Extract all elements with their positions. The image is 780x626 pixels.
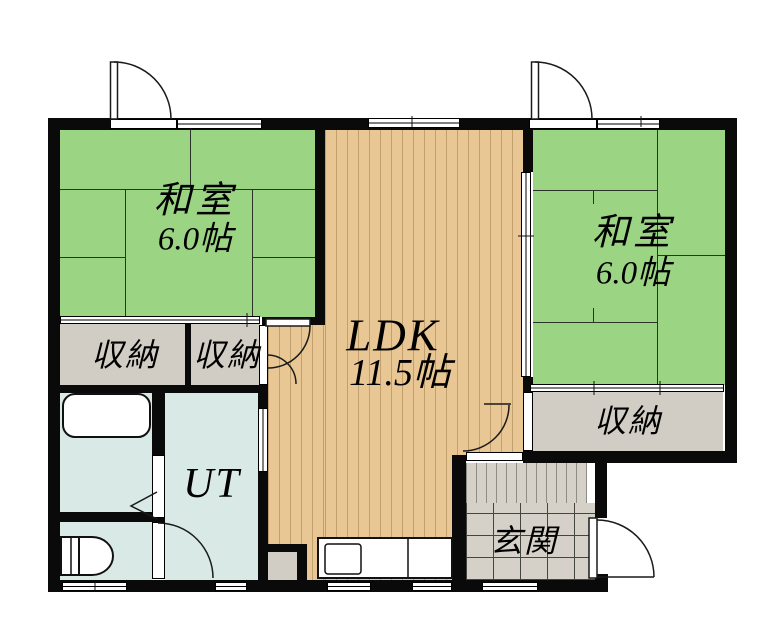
wall: [595, 451, 607, 518]
window: [412, 582, 452, 591]
window: [215, 582, 247, 591]
wall: [297, 544, 307, 582]
tatami-line: [593, 308, 594, 322]
storage-mid-label: 収納: [193, 339, 261, 371]
toilet-room-floor: [60, 522, 152, 580]
alcove-floor: [265, 552, 297, 582]
door-toilet: [152, 522, 165, 579]
room-ldk-floor: [325, 130, 523, 455]
room-ldk-floor-west: [268, 325, 325, 580]
genkan-label: 玄関: [490, 525, 558, 557]
wall: [452, 455, 466, 592]
tatami-line: [252, 257, 315, 258]
sliding-door: [60, 316, 260, 324]
tatami-line: [533, 322, 657, 323]
wall: [48, 385, 268, 393]
room-kitchen-floor: [325, 455, 452, 580]
entrance-door-swing-arc: [597, 520, 654, 577]
door-bathroom: [152, 455, 165, 518]
sliding-door: [530, 384, 724, 392]
window: [368, 118, 460, 128]
door-threshold: [110, 119, 177, 129]
washitsu-left-size-label: 6.0帖: [158, 224, 232, 257]
tatami-line: [60, 257, 125, 258]
washitsu-right-size-label: 6.0帖: [596, 258, 670, 291]
window: [177, 119, 262, 129]
door-threshold: [466, 452, 523, 461]
door-swing-arc: [535, 62, 592, 119]
tatami-line: [533, 190, 657, 191]
tatami-line: [252, 190, 253, 317]
window: [327, 582, 371, 591]
storage-left-label: 収納: [91, 339, 159, 371]
wall-right: [725, 118, 737, 463]
wall: [523, 451, 737, 463]
tatami-line: [593, 190, 594, 204]
hall-floor: [466, 463, 587, 503]
bathroom-floor: [60, 393, 152, 512]
wall: [48, 512, 165, 522]
window: [597, 119, 660, 129]
door-leaf: [532, 62, 539, 119]
door-swing-arc: [114, 62, 171, 119]
floor-plan: 和室 6.0帖 和室 6.0帖 LDK 11.5帖 収納 収納 収納 UT 玄関: [0, 0, 780, 626]
sliding-door: [258, 408, 268, 472]
sliding-door: [521, 172, 531, 377]
door-leaf: [111, 62, 118, 119]
window: [482, 582, 538, 591]
utility-label: UT: [183, 463, 241, 505]
window: [62, 582, 127, 591]
closet-wall: [523, 392, 533, 451]
ldk-size-label: 11.5帖: [349, 354, 451, 392]
wall: [315, 118, 325, 317]
storage-right-label: 収納: [594, 405, 662, 437]
door-threshold: [529, 119, 597, 129]
washitsu-left-name-label: 和室: [154, 183, 236, 220]
tatami-line: [125, 190, 126, 317]
wall: [185, 324, 191, 385]
wall: [595, 574, 608, 592]
wall: [262, 317, 325, 325]
washitsu-right-name-label: 和室: [592, 215, 674, 252]
